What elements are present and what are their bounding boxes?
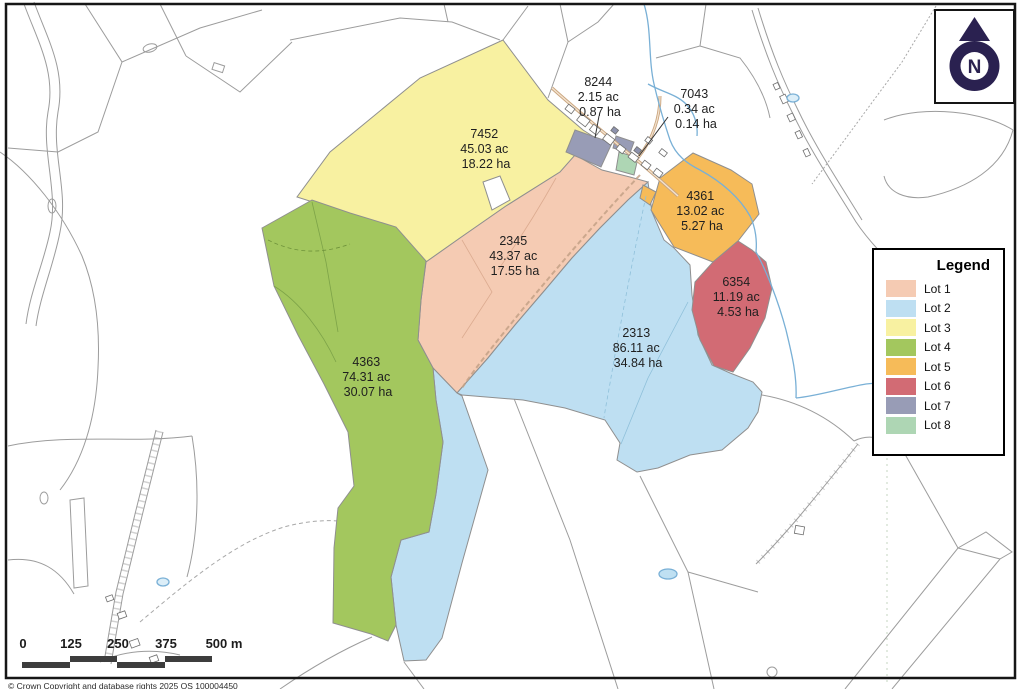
lot-8-callout: 7043 0.34 ac 0.14 ha — [674, 87, 719, 131]
north-letter: N — [968, 57, 982, 78]
legend-item-lot-7: Lot 7 — [874, 396, 1003, 416]
lot-1-swatch — [886, 280, 916, 297]
map-drawing: 7452 45.03 ac 18.22 ha 2345 43.37 ac 17.… — [0, 0, 1024, 689]
legend-item-lot-3: Lot 3 — [874, 318, 1003, 338]
legend-item-lot-2: Lot 2 — [874, 299, 1003, 319]
legend-item-lot-8: Lot 8 — [874, 416, 1003, 436]
scale-segment — [165, 656, 212, 662]
lot-3-swatch — [886, 319, 916, 336]
scale-tick: 0 — [19, 636, 26, 651]
legend-title: Legend — [874, 250, 1003, 279]
north-arrow-icon: N — [936, 11, 1013, 102]
lot-2-swatch — [886, 300, 916, 317]
pond — [659, 569, 677, 579]
lot-7-swatch — [886, 397, 916, 414]
lot-6-swatch — [886, 378, 916, 395]
north-arrow: N — [934, 9, 1015, 104]
legend-label: Lot 7 — [924, 399, 951, 413]
lot-7-callout: 8244 2.15 ac 0.87 ha — [578, 75, 623, 119]
legend-item-lot-5: Lot 5 — [874, 357, 1003, 377]
legend-label: Lot 6 — [924, 379, 951, 393]
legend-label: Lot 2 — [924, 301, 951, 315]
scale-segment — [117, 662, 165, 668]
pond — [787, 94, 799, 102]
scale-tick: 375 — [155, 636, 177, 651]
legend-item-lot-6: Lot 6 — [874, 377, 1003, 397]
scale-bar: 0 125 250 375 500 m — [0, 632, 260, 678]
scale-tick: 250 — [107, 636, 129, 651]
lot-4-swatch — [886, 339, 916, 356]
pond — [157, 578, 169, 586]
legend: Legend Lot 1 Lot 2 Lot 3 Lot 4 Lot 5 Lot… — [872, 248, 1005, 456]
legend-label: Lot 5 — [924, 360, 951, 374]
legend-label: Lot 1 — [924, 282, 951, 296]
lot-5-swatch — [886, 358, 916, 375]
land-lotting-map: 7452 45.03 ac 18.22 ha 2345 43.37 ac 17.… — [0, 0, 1024, 689]
legend-label: Lot 4 — [924, 340, 951, 354]
scale-segment — [22, 662, 70, 668]
legend-item-lot-1: Lot 1 — [874, 279, 1003, 299]
legend-item-lot-4: Lot 4 — [874, 338, 1003, 358]
legend-label: Lot 8 — [924, 418, 951, 432]
copyright-note: © Crown Copyright and database rights 20… — [8, 681, 238, 689]
scale-segment — [70, 656, 117, 662]
lot-8-swatch — [886, 417, 916, 434]
scale-tick: 125 — [60, 636, 82, 651]
legend-label: Lot 3 — [924, 321, 951, 335]
scale-tick: 500 m — [206, 636, 243, 651]
